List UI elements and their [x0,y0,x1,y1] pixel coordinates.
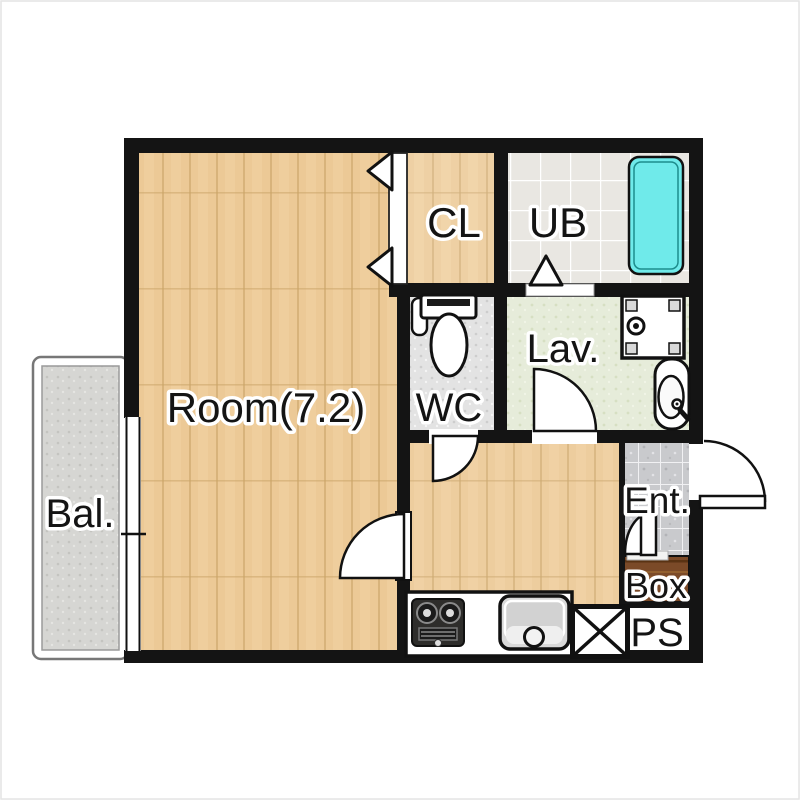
closet-label: CL [427,199,481,246]
shoebox-label: Box [625,565,687,606]
bathtub [629,157,683,274]
main-room-label: Room(7.2) [167,384,365,431]
lavatory-label: Lav. [527,327,600,371]
floorplan-image: Room(7.2) CL UB WC Lav. Bal. Ent. Box PS [0,0,800,800]
kitchen-sink [500,596,569,649]
entrance-label: Ent. [624,480,690,521]
floorplan-svg: Room(7.2) CL UB WC Lav. Bal. Ent. Box PS [0,0,800,800]
pipespace-label: PS [630,611,683,655]
vanity-sink [655,359,689,429]
wc-label: WC [416,386,483,430]
ps-shaft-marker [573,607,628,657]
gas-stove [412,599,464,647]
balcony-label: Bal. [46,492,115,536]
washing-machine-pan [622,296,684,358]
kitchen-counter [406,592,572,656]
bath-label: UB [529,199,587,246]
